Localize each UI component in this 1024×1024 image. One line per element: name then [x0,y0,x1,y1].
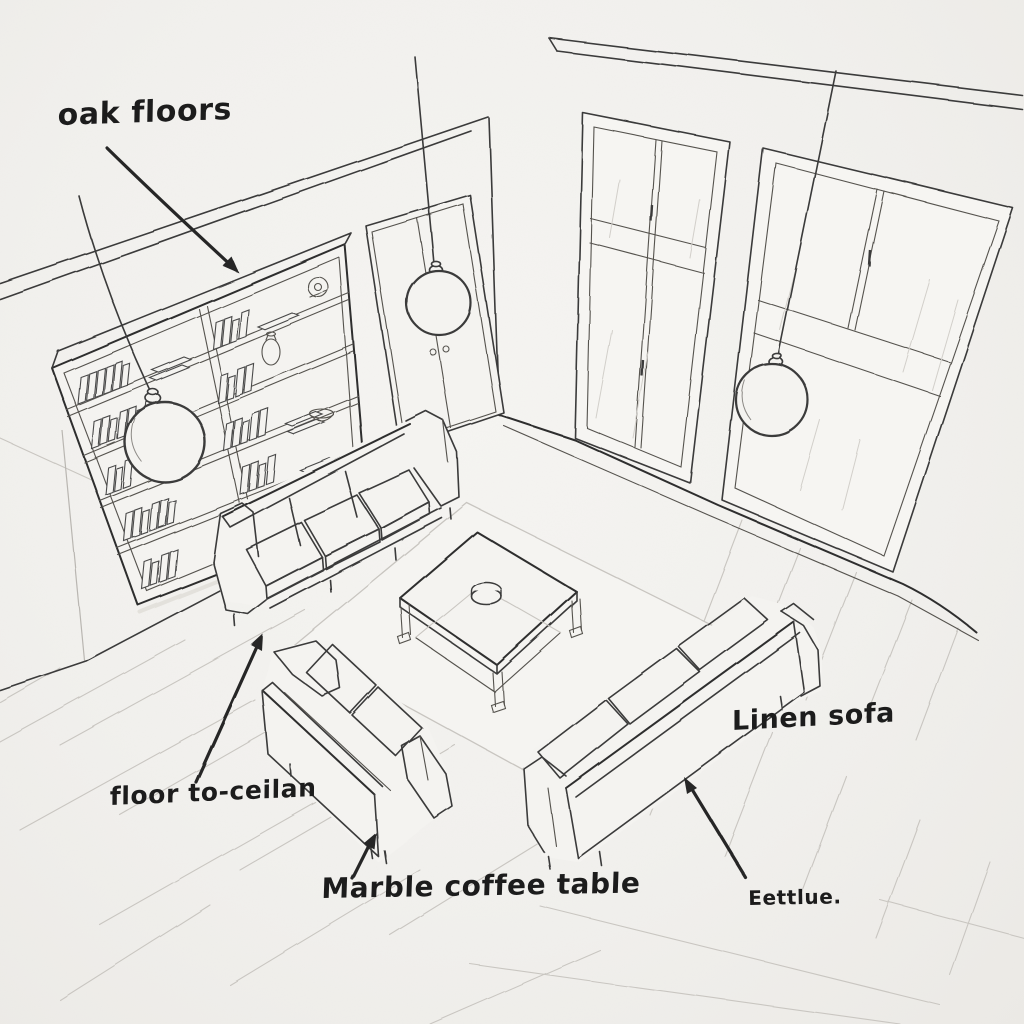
label-bottom-right-note: Eettlue. [748,884,842,910]
globe-shade [125,402,205,482]
sketch-canvas: oak floors floor to-ceilan Marble coffee… [0,0,1024,1024]
bowl-on-table [471,582,501,604]
label-marble-coffee-table: Marble coffee table [321,866,641,905]
globe-shade [736,364,808,436]
globe-shade [407,271,471,335]
label-oak-floors: oak floors [57,92,232,133]
